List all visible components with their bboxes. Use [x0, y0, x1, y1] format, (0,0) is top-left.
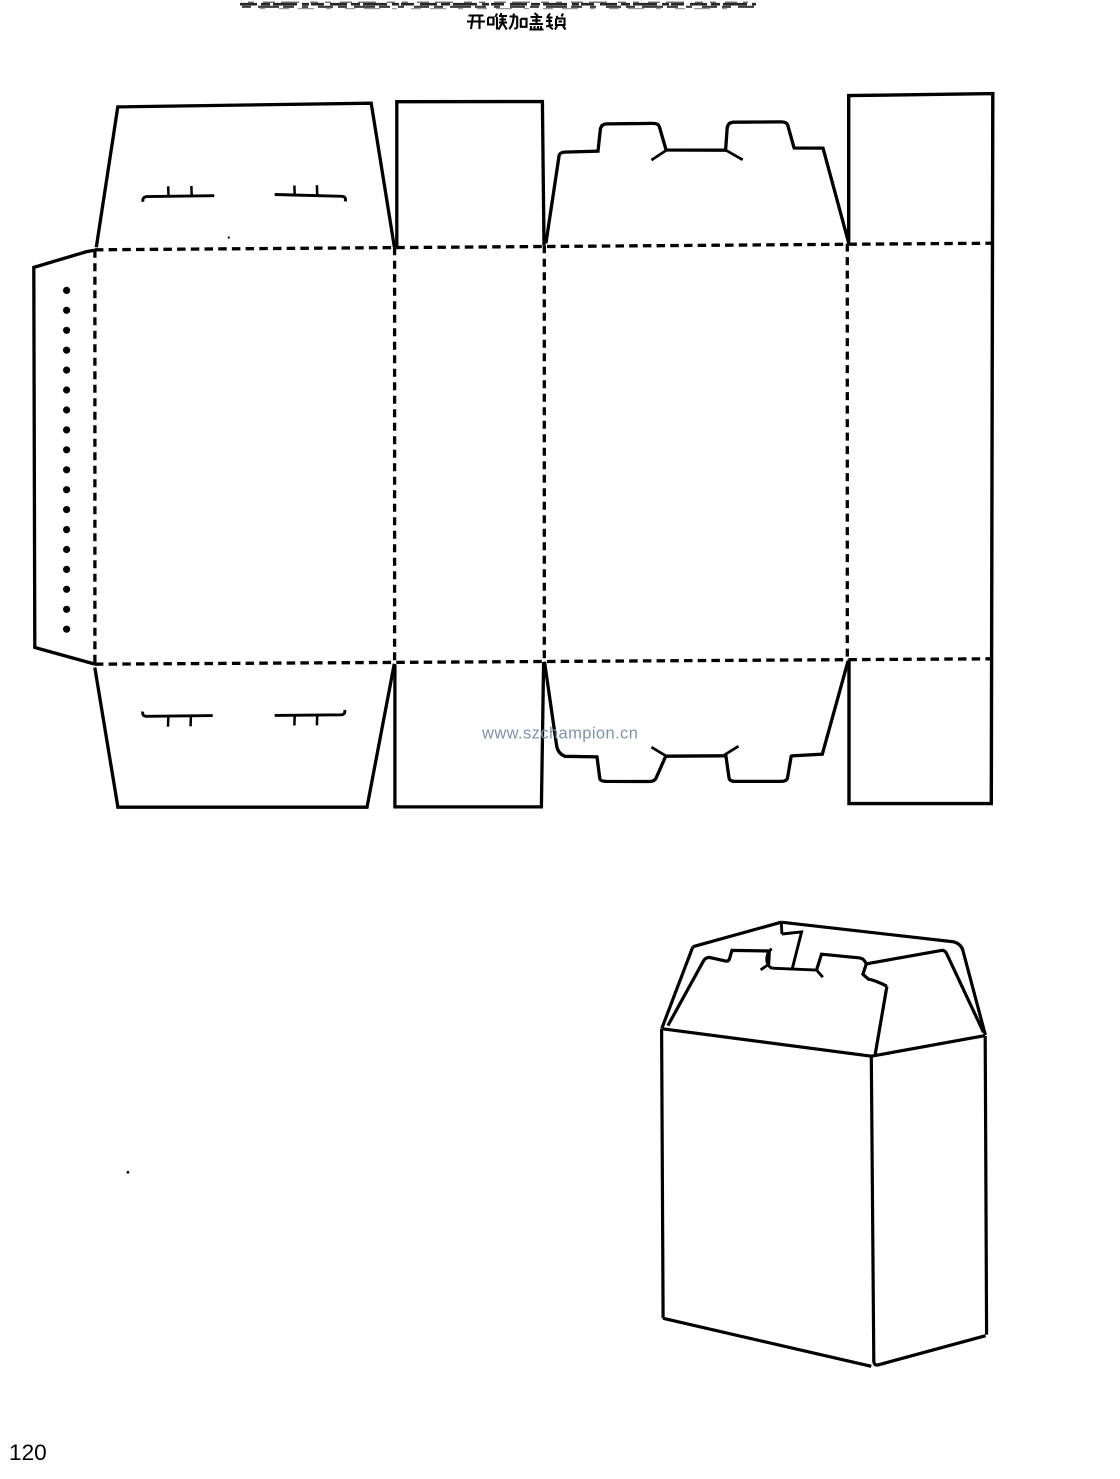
svg-text:www.szchampion.cn: www.szchampion.cn [481, 725, 638, 743]
svg-text:120: 120 [9, 1440, 47, 1465]
